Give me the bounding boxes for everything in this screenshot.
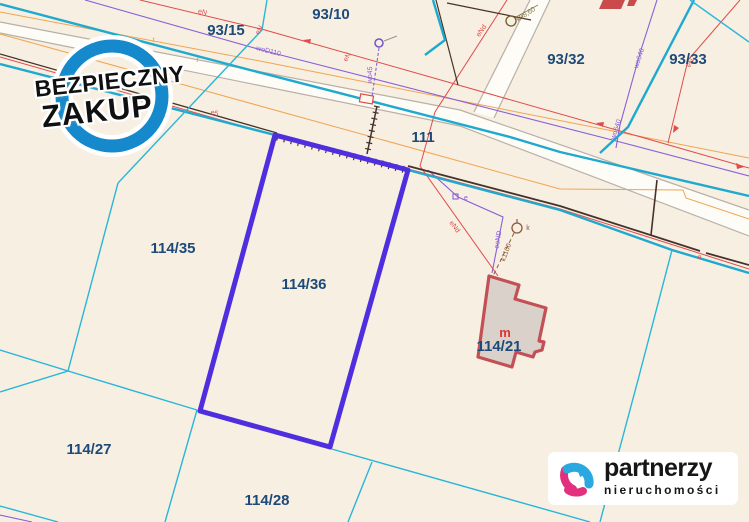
- utility-cabinet-icon: [359, 94, 373, 104]
- building-use-mark: m: [499, 325, 511, 340]
- cadastral-map: 93/15 93/10 93/32 93/33 111 114/35 114/3…: [0, 0, 749, 522]
- partnerzy-logo: partnerzy nieruchomości: [548, 452, 738, 505]
- valve-icon: [375, 39, 383, 47]
- parcel-label-93-32: 93/32: [547, 51, 585, 68]
- watermark-shape: [599, 0, 625, 9]
- utility-label-e: e: [464, 195, 468, 202]
- parcel-label-114-27: 114/27: [66, 441, 111, 458]
- map-drawing: 93/15 93/10 93/32 93/33 111 114/35 114/3…: [0, 0, 749, 522]
- logo-text: partnerzy nieruchomości: [604, 455, 721, 497]
- utility-label-wo45: wo45: [367, 66, 375, 84]
- parcel-label-93-10: 93/10: [312, 6, 350, 23]
- logo-brand-name: partnerzy: [604, 455, 721, 482]
- logo-subtitle: nieruchomości: [604, 483, 721, 497]
- parcel-label-114-35: 114/35: [150, 240, 195, 257]
- logo-pink-arc: [568, 490, 583, 493]
- parcel-label-111: 111: [411, 129, 434, 146]
- partnerzy-logo-mark: [556, 457, 600, 501]
- parcel-label-114-28: 114/28: [244, 492, 289, 509]
- parcel-label-114-36: 114/36: [281, 276, 326, 293]
- parcel-label-114-21: 114/21: [476, 338, 521, 355]
- parcel-label-93-15: 93/15: [207, 22, 245, 39]
- utility-label-k: k: [526, 225, 530, 232]
